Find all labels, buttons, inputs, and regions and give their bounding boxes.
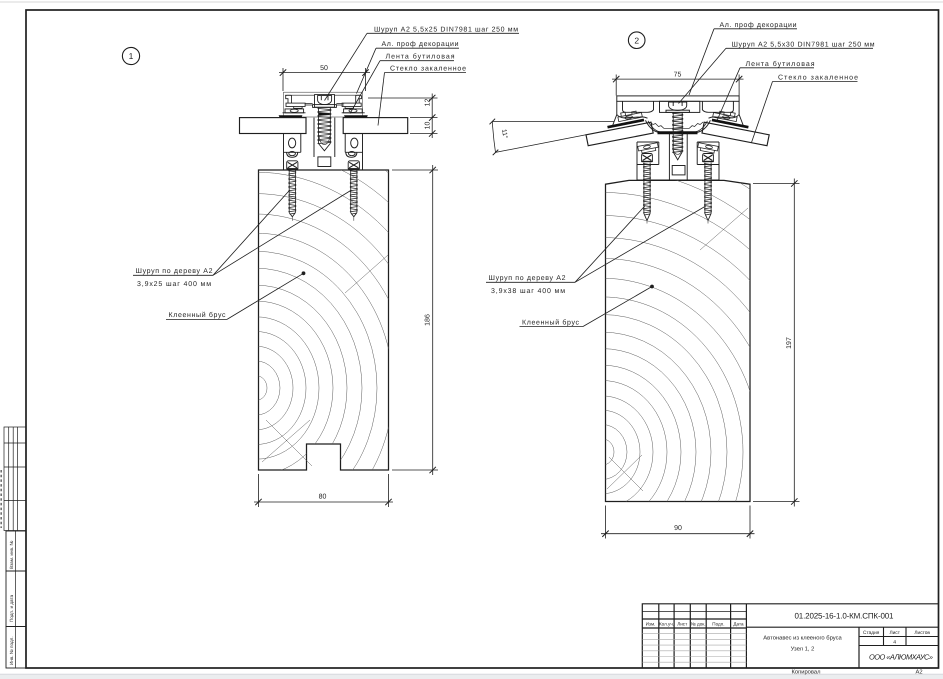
svg-text:90: 90 bbox=[674, 525, 682, 532]
svg-text:Лента бутиловая: Лента бутиловая bbox=[386, 53, 455, 61]
svg-text:12: 12 bbox=[425, 99, 432, 107]
svg-text:3,9х38 шаг 400 мм: 3,9х38 шаг 400 мм bbox=[491, 288, 565, 295]
svg-text:ООО «АЛЮМХАУС»: ООО «АЛЮМХАУС» bbox=[869, 652, 933, 661]
svg-text:Стекло закаленное: Стекло закаленное bbox=[390, 66, 466, 73]
svg-text:Лист: Лист bbox=[677, 621, 688, 626]
svg-text:Ал. проф декорации: Ал. проф декорации bbox=[720, 21, 797, 29]
svg-text:Лист: Лист bbox=[889, 630, 900, 636]
svg-text:186: 186 bbox=[425, 314, 432, 326]
svg-text:3,9х25 шаг 400 мм: 3,9х25 шаг 400 мм bbox=[137, 281, 211, 288]
svg-text:Лента бутиловая: Лента бутиловая bbox=[746, 60, 815, 68]
svg-text:Автонавес из клееного бруса: Автонавес из клееного бруса bbox=[763, 635, 842, 642]
svg-text:Стадия: Стадия bbox=[863, 630, 880, 636]
svg-text:Взам. инв. №: Взам. инв. № bbox=[9, 540, 14, 569]
svg-text:197: 197 bbox=[786, 337, 793, 349]
svg-text:Узел 1, 2: Узел 1, 2 bbox=[791, 646, 815, 653]
svg-text:80: 80 bbox=[319, 494, 327, 501]
svg-text:1: 1 bbox=[129, 51, 134, 61]
svg-text:Изм.: Изм. bbox=[646, 621, 656, 626]
svg-text:75: 75 bbox=[674, 72, 682, 79]
svg-text:№ док.: № док. bbox=[691, 621, 706, 626]
svg-text:2: 2 bbox=[634, 35, 639, 45]
svg-text:А2: А2 bbox=[915, 669, 922, 676]
svg-text:Дата: Дата bbox=[733, 621, 744, 626]
svg-text:01.2025-16-1.0-КМ.СПК-001: 01.2025-16-1.0-КМ.СПК-001 bbox=[795, 612, 895, 621]
svg-text:Инв. № подл.: Инв. № подл. bbox=[9, 636, 14, 665]
svg-text:Шуруп А2 5,5х25 DIN7981 шаг 25: Шуруп А2 5,5х25 DIN7981 шаг 250 мм bbox=[374, 26, 518, 33]
svg-text:Листов: Листов bbox=[914, 630, 930, 636]
svg-text:Клеенный брус: Клеенный брус bbox=[522, 318, 580, 326]
svg-text:Копировал: Копировал bbox=[791, 670, 820, 676]
svg-text:10: 10 bbox=[425, 122, 432, 130]
svg-text:Шуруп А2 5,5х30 DIN7981 шаг 25: Шуруп А2 5,5х30 DIN7981 шаг 250 мм bbox=[732, 41, 875, 48]
svg-text:Шуруп по дереву А2: Шуруп по дереву А2 bbox=[136, 268, 213, 275]
svg-text:Ал. проф декорации: Ал. проф декорации bbox=[382, 40, 459, 48]
svg-text:Стекло закаленное: Стекло закаленное bbox=[778, 75, 858, 82]
svg-text:Подп. и дата: Подп. и дата bbox=[9, 594, 14, 622]
svg-text:50: 50 bbox=[320, 65, 328, 72]
svg-text:4: 4 bbox=[893, 640, 896, 646]
svg-text:Кол.уч.: Кол.уч. bbox=[659, 621, 674, 626]
svg-text:Подп.: Подп. bbox=[712, 621, 724, 626]
svg-text:Шуруп по дереву А2: Шуруп по дереву А2 bbox=[489, 275, 566, 282]
svg-text:Клеенный брус: Клеенный брус bbox=[169, 311, 227, 319]
